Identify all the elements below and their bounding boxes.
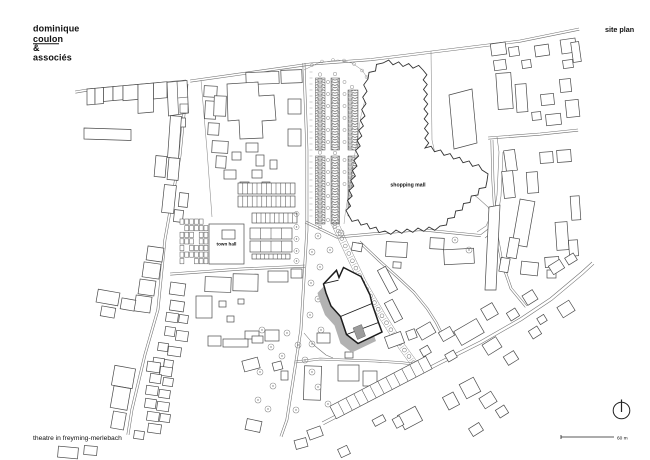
svg-text:associés: associés [33, 53, 72, 63]
svg-text:&: & [33, 43, 40, 53]
svg-text:dominique: dominique [33, 24, 79, 34]
svg-text:60 m: 60 m [617, 436, 628, 442]
svg-text:theatre in freyming-merlebach: theatre in freyming-merlebach [33, 435, 122, 442]
svg-text:town hall: town hall [217, 242, 237, 247]
svg-text:site plan: site plan [605, 25, 634, 34]
svg-text:shopping mall: shopping mall [390, 183, 426, 189]
